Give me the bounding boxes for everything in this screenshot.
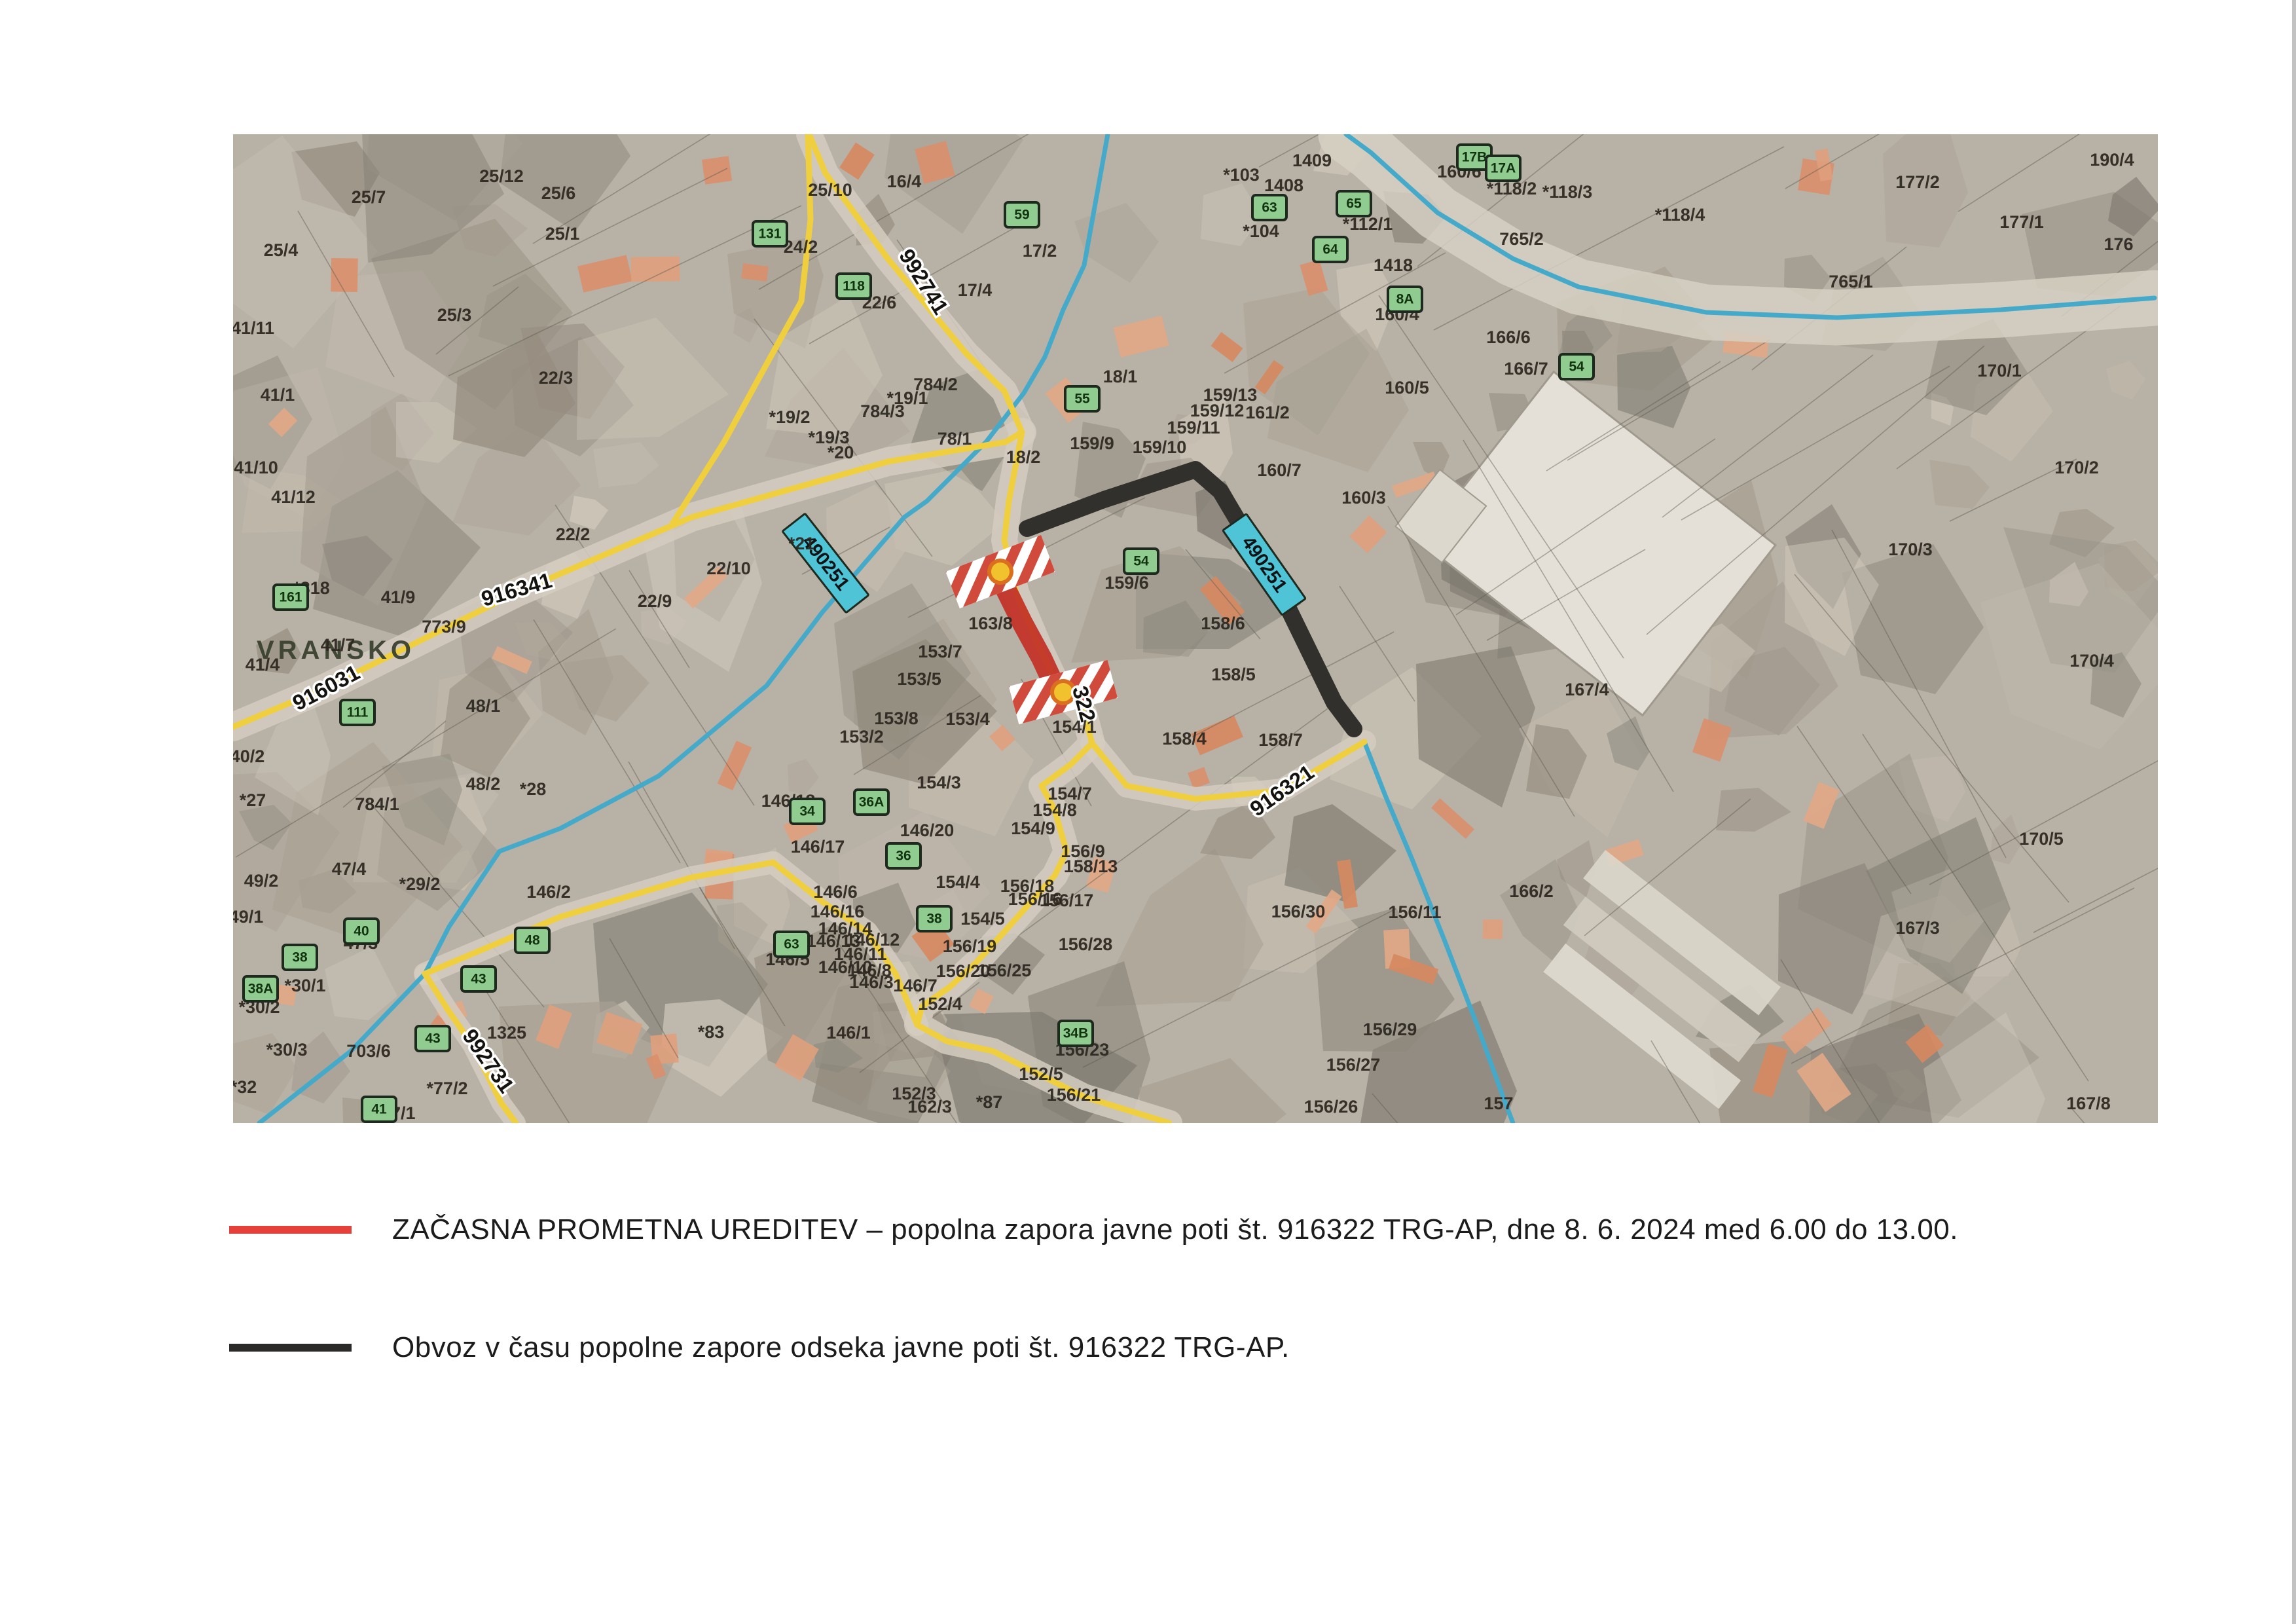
parcel-label: 158/7 (1258, 730, 1303, 750)
svg-text:*30/1: *30/1 (284, 976, 325, 995)
parcel-label: 48/1 (466, 696, 501, 716)
house-number-box: 34 (790, 799, 824, 824)
svg-text:153/5: 153/5 (897, 669, 941, 689)
svg-text:25/7: 25/7 (352, 187, 386, 207)
parcel-label: 170/2 (2054, 458, 2099, 477)
svg-text:765/1: 765/1 (1829, 272, 1873, 291)
svg-text:154/5: 154/5 (960, 909, 1005, 929)
parcel-label: 170/1 (1977, 361, 2022, 380)
parcel-label: 41/12 (271, 487, 316, 507)
svg-text:18/1: 18/1 (1103, 367, 1138, 386)
svg-text:160/3: 160/3 (1341, 488, 1386, 507)
svg-text:64: 64 (1322, 242, 1338, 257)
parcel-label: *77/2 (426, 1079, 467, 1098)
svg-text:170/4: 170/4 (2069, 651, 2114, 671)
parcel-label: *32 (233, 1077, 257, 1097)
house-number-box: 54 (1559, 354, 1594, 379)
svg-text:152/3: 152/3 (892, 1084, 936, 1103)
house-number-box: 65 (1337, 191, 1371, 216)
svg-text:*104: *104 (1243, 221, 1279, 241)
house-number-box: 38 (917, 906, 951, 931)
svg-text:43: 43 (425, 1031, 440, 1046)
svg-text:*27: *27 (240, 790, 266, 810)
parcel-label: 153/4 (945, 709, 990, 729)
house-number-box: 54 (1124, 549, 1158, 574)
svg-text:55: 55 (1074, 392, 1090, 407)
svg-text:25/3: 25/3 (437, 305, 472, 325)
parcel-label: 784/2 (913, 375, 958, 394)
svg-text:17B: 17B (1462, 150, 1487, 165)
parcel-label: 167/4 (1565, 680, 1609, 699)
parcel-label: *21 (788, 534, 815, 553)
parcel-label: 177/1 (1999, 212, 2044, 232)
house-number-box: 34B (1059, 1021, 1093, 1046)
parcel-label: 156/25 (977, 961, 1032, 980)
house-number-box: 59 (1005, 202, 1039, 227)
house-number-box: 36A (854, 790, 888, 815)
house-number-box: 161 (274, 585, 308, 610)
parcel-label: 152/5 (1019, 1064, 1063, 1084)
svg-text:765/2: 765/2 (1499, 229, 1544, 249)
parcel-label: 156/19 (943, 936, 997, 956)
house-number-box: 55 (1065, 386, 1099, 411)
parcel-label: 25/7 (352, 187, 386, 207)
svg-text:63: 63 (1262, 200, 1277, 215)
svg-text:63: 63 (784, 937, 799, 952)
svg-text:167/8: 167/8 (2066, 1094, 2111, 1113)
parcel-label: 49/2 (244, 871, 279, 891)
parcel-label: 170/4 (2069, 651, 2114, 671)
svg-text:163/8: 163/8 (968, 614, 1013, 633)
parcel-label: 25/10 (808, 180, 852, 200)
svg-text:154/4: 154/4 (936, 872, 980, 892)
house-number-box: 63 (774, 932, 809, 957)
svg-text:36A: 36A (859, 795, 884, 810)
parcel-label: 146/1 (826, 1023, 871, 1043)
svg-text:156/19: 156/19 (943, 936, 997, 956)
house-number-box: 41 (362, 1097, 396, 1122)
parcel-label: *29/2 (399, 874, 440, 894)
svg-text:22/3: 22/3 (539, 368, 574, 388)
svg-text:154/8: 154/8 (1032, 800, 1077, 820)
scan-edge-artifact (2292, 0, 2296, 1624)
svg-text:160/5: 160/5 (1385, 378, 1429, 397)
svg-text:159/11: 159/11 (1167, 418, 1220, 437)
parcel-label: 159/10 (1133, 437, 1187, 457)
svg-text:118: 118 (843, 279, 865, 294)
house-number-box: 64 (1313, 237, 1347, 262)
svg-text:*103: *103 (1223, 165, 1260, 185)
svg-text:*29/2: *29/2 (399, 874, 440, 894)
svg-text:41/11: 41/11 (233, 318, 274, 338)
svg-text:*118/3: *118/3 (1542, 182, 1593, 202)
svg-text:167/3: 167/3 (1895, 918, 1940, 938)
house-number-box: 8A (1388, 287, 1422, 312)
svg-text:17A: 17A (1491, 161, 1516, 176)
parcel-label: 146/6 (813, 882, 858, 902)
svg-text:158/4: 158/4 (1162, 729, 1207, 748)
parcel-label: 22/9 (638, 591, 672, 611)
svg-text:16/4: 16/4 (887, 172, 922, 191)
parcel-label: 154/8 (1032, 800, 1077, 820)
svg-text:784/3: 784/3 (860, 401, 905, 421)
svg-text:154/9: 154/9 (1011, 819, 1055, 838)
svg-text:159/13: 159/13 (1203, 385, 1258, 405)
svg-text:156/21: 156/21 (1047, 1085, 1101, 1105)
parcel-label: 41/4 (246, 655, 280, 674)
svg-text:41/4: 41/4 (246, 655, 280, 674)
parcel-label: 41/1 (261, 385, 295, 405)
house-number-box: 131 (753, 221, 787, 246)
parcel-label: 161/2 (1245, 403, 1290, 422)
svg-text:703/6: 703/6 (346, 1041, 391, 1061)
house-number-box: 63 (1252, 195, 1286, 220)
svg-text:22/10: 22/10 (706, 559, 751, 578)
detour-color-swatch (229, 1344, 352, 1352)
parcel-label: 48/2 (466, 774, 501, 794)
parcel-label: 156/27 (1326, 1055, 1381, 1075)
svg-text:47/4: 47/4 (332, 859, 367, 879)
parcel-label: 154/4 (936, 872, 980, 892)
svg-text:41/10: 41/10 (234, 458, 278, 477)
svg-text:146/1: 146/1 (826, 1023, 871, 1043)
svg-text:152/4: 152/4 (918, 994, 962, 1014)
parcel-label: 153/2 (839, 727, 884, 747)
house-number-box: 43 (462, 967, 496, 991)
svg-text:40: 40 (354, 924, 369, 939)
parcel-label: 154/5 (960, 909, 1005, 929)
parcel-label: 703/6 (346, 1041, 391, 1061)
parcel-label: 17/2 (1023, 241, 1057, 261)
svg-text:24/2: 24/2 (784, 237, 818, 257)
svg-text:177/2: 177/2 (1895, 172, 1940, 192)
parcel-label: 146/8 (847, 961, 892, 980)
svg-text:25/1: 25/1 (545, 224, 580, 244)
svg-text:170/1: 170/1 (1977, 361, 2022, 380)
svg-text:153/8: 153/8 (874, 709, 919, 728)
parcel-label: 40/2 (233, 747, 264, 766)
scanned-page: { "document": { "type": "scanned traffic… (0, 0, 2296, 1624)
house-number-box: 111 (340, 700, 374, 725)
parcel-label: 158/6 (1201, 614, 1245, 633)
parcel-label: 25/4 (264, 240, 299, 260)
aerial-map: VRANSKO916031916341992741992731916321322… (233, 134, 2158, 1123)
svg-text:34: 34 (799, 804, 815, 819)
svg-text:78/1: 78/1 (938, 429, 972, 449)
parcel-label: 784/1 (355, 794, 399, 814)
svg-text:*19/2: *19/2 (769, 407, 810, 427)
closure-color-swatch (229, 1226, 352, 1234)
svg-text:166/6: 166/6 (1486, 327, 1531, 347)
parcel-label: 41/9 (381, 587, 416, 607)
svg-text:*28: *28 (520, 779, 547, 799)
parcel-label: 157 (1484, 1094, 1513, 1113)
parcel-label: 784/3 (860, 401, 905, 421)
svg-text:158/7: 158/7 (1258, 730, 1303, 750)
svg-text:*118/4: *118/4 (1655, 205, 1705, 225)
parcel-label: *30/3 (266, 1040, 307, 1060)
svg-text:1418: 1418 (1374, 255, 1413, 275)
svg-text:152/5: 152/5 (1019, 1064, 1063, 1084)
svg-text:48/1: 48/1 (466, 696, 501, 716)
svg-text:22/2: 22/2 (556, 525, 591, 544)
svg-text:*83: *83 (698, 1022, 725, 1042)
svg-text:25/10: 25/10 (808, 180, 852, 200)
parcel-label: 24/2 (784, 237, 818, 257)
svg-text:25/12: 25/12 (479, 166, 524, 186)
parcel-label: 159/6 (1104, 573, 1149, 593)
house-number-box: 48 (515, 928, 549, 953)
svg-text:167/4: 167/4 (1565, 680, 1609, 699)
svg-text:54: 54 (1133, 554, 1149, 569)
parcel-label: *104 (1243, 221, 1279, 241)
svg-text:48: 48 (524, 933, 540, 948)
parcel-label: 41/10 (234, 458, 278, 477)
svg-text:784/1: 784/1 (355, 794, 399, 814)
svg-text:*32: *32 (233, 1077, 257, 1097)
parcel-label: 154/9 (1011, 819, 1055, 838)
parcel-label: 25/6 (541, 183, 576, 203)
svg-text:153/7: 153/7 (918, 642, 962, 661)
svg-text:159/9: 159/9 (1070, 434, 1114, 453)
parcel-label: 25/3 (437, 305, 472, 325)
parcel-label: 160/3 (1341, 488, 1386, 507)
svg-text:156/29: 156/29 (1363, 1020, 1417, 1039)
parcel-label: 1409 (1292, 151, 1332, 170)
svg-text:*77/2: *77/2 (426, 1079, 467, 1098)
parcel-label: 17/4 (958, 280, 993, 300)
parcel-label: 156/26 (1304, 1097, 1358, 1116)
svg-text:784/2: 784/2 (913, 375, 958, 394)
svg-text:159/10: 159/10 (1133, 437, 1187, 457)
parcel-label: *103 (1223, 165, 1260, 185)
svg-text:18/2: 18/2 (1006, 447, 1041, 467)
svg-text:146/8: 146/8 (847, 961, 892, 980)
parcel-label: *30/1 (284, 976, 325, 995)
svg-text:146/20: 146/20 (900, 821, 955, 840)
parcel-label: *20 (828, 443, 854, 462)
svg-text:*20: *20 (828, 443, 854, 462)
svg-text:156/30: 156/30 (1271, 902, 1326, 921)
house-number-box: 40 (344, 919, 378, 944)
parcel-label: 156/11 (1388, 902, 1441, 922)
parcel-label: 49/1 (233, 907, 263, 927)
parcel-label: 1418 (1374, 255, 1413, 275)
svg-text:146/6: 146/6 (813, 882, 858, 902)
parcel-label: 1325 (487, 1023, 526, 1043)
svg-text:170/5: 170/5 (2019, 829, 2064, 849)
parcel-label: *87 (976, 1092, 1003, 1112)
svg-text:*30/3: *30/3 (266, 1040, 307, 1060)
svg-text:43: 43 (471, 972, 486, 987)
svg-text:153/2: 153/2 (839, 727, 884, 747)
svg-text:25/4: 25/4 (264, 240, 299, 260)
parcel-label: 22/3 (539, 368, 574, 388)
svg-text:170/2: 170/2 (2054, 458, 2099, 477)
svg-text:156/25: 156/25 (977, 961, 1032, 980)
svg-text:111: 111 (347, 705, 369, 720)
svg-text:17/4: 17/4 (958, 280, 993, 300)
svg-text:38A: 38A (248, 982, 274, 997)
parcel-label: 166/7 (1504, 359, 1548, 378)
svg-text:156/18: 156/18 (1000, 876, 1055, 896)
svg-text:49/2: 49/2 (244, 871, 279, 891)
house-number-box: 118 (837, 274, 871, 299)
svg-text:131: 131 (758, 227, 781, 242)
svg-text:159/6: 159/6 (1104, 573, 1149, 593)
parcel-label: 765/2 (1499, 229, 1544, 249)
parcel-label: *118/4 (1655, 205, 1705, 225)
svg-text:22/9: 22/9 (638, 591, 672, 611)
svg-text:177/1: 177/1 (1999, 212, 2044, 232)
svg-text:38: 38 (926, 912, 942, 927)
svg-text:176: 176 (2104, 234, 2133, 254)
house-number-box: 36 (886, 843, 920, 868)
legend-item-closure: ZAČASNA PROMETNA UREDITEV – popolna zapo… (229, 1213, 1958, 1247)
parcel-label: 176 (2104, 234, 2133, 254)
parcel-label: 41/7 (321, 635, 355, 655)
parcel-label: 152/3 (892, 1084, 936, 1103)
legend-detour-text: Obvoz v času popolne zapore odseka javne… (392, 1331, 1290, 1365)
svg-text:17/2: 17/2 (1023, 241, 1057, 261)
parcel-label: 154/3 (917, 773, 961, 792)
parcel-label: 153/8 (874, 709, 919, 728)
parcel-label: 163/8 (968, 614, 1013, 633)
svg-text:41/7: 41/7 (321, 635, 355, 655)
legend-closure-text: ZAČASNA PROMETNA UREDITEV – popolna zapo… (392, 1213, 1958, 1247)
parcel-label: 78/1 (938, 429, 972, 449)
parcel-label: 153/5 (897, 669, 941, 689)
svg-text:154/1: 154/1 (1052, 717, 1097, 737)
svg-text:40/2: 40/2 (233, 747, 264, 766)
svg-text:41/9: 41/9 (381, 587, 416, 607)
parcel-label: *19/2 (769, 407, 810, 427)
svg-text:156/28: 156/28 (1059, 934, 1113, 954)
map-canvas: VRANSKO916031916341992741992731916321322… (233, 134, 2158, 1123)
parcel-label: 159/11 (1167, 418, 1220, 437)
svg-text:156/9: 156/9 (1061, 841, 1105, 861)
svg-text:190/4: 190/4 (2090, 150, 2134, 170)
parcel-label: 170/3 (1888, 540, 1933, 559)
parcel-label: 22/2 (556, 525, 591, 544)
parcel-label: 18/1 (1103, 367, 1138, 386)
parcel-label: 154/1 (1052, 717, 1097, 737)
house-number-box: 38 (283, 945, 317, 970)
parcel-label: 156/29 (1363, 1020, 1417, 1039)
svg-text:158/6: 158/6 (1201, 614, 1245, 633)
svg-text:41/1: 41/1 (261, 385, 295, 405)
parcel-label: 159/13 (1203, 385, 1258, 405)
parcel-label: 158/5 (1211, 665, 1256, 684)
svg-text:38: 38 (292, 950, 308, 965)
svg-text:153/4: 153/4 (945, 709, 990, 729)
svg-text:157: 157 (1484, 1094, 1513, 1113)
svg-text:*87: *87 (976, 1092, 1003, 1112)
svg-text:161/2: 161/2 (1245, 403, 1290, 422)
parcel-label: 156/9 (1061, 841, 1105, 861)
svg-text:59: 59 (1014, 208, 1029, 223)
parcel-label: 167/8 (2066, 1094, 2111, 1113)
svg-text:158/5: 158/5 (1211, 665, 1256, 684)
svg-text:156/26: 156/26 (1304, 1097, 1358, 1116)
parcel-label: 152/4 (918, 994, 962, 1014)
parcel-label: 159/9 (1070, 434, 1114, 453)
house-number-box: 17A (1486, 156, 1520, 181)
legend-item-detour: Obvoz v času popolne zapore odseka javne… (229, 1331, 1290, 1365)
parcel-label: *83 (698, 1022, 725, 1042)
parcel-label: 22/10 (706, 559, 751, 578)
parcel-label: 146/17 (791, 837, 845, 857)
parcel-label: *28 (520, 779, 547, 799)
parcel-label: 166/6 (1486, 327, 1531, 347)
svg-text:160/7: 160/7 (1257, 460, 1302, 480)
svg-text:48/2: 48/2 (466, 774, 501, 794)
parcel-label: 16/4 (887, 172, 922, 191)
parcel-label: 166/2 (1509, 881, 1554, 901)
parcel-label: 156/30 (1271, 902, 1326, 921)
svg-text:1408: 1408 (1264, 175, 1303, 195)
svg-text:54: 54 (1569, 360, 1584, 375)
svg-text:161: 161 (279, 590, 302, 605)
parcel-label: 160/7 (1257, 460, 1302, 480)
svg-text:166/7: 166/7 (1504, 359, 1548, 378)
house-number-box: 43 (416, 1026, 450, 1051)
svg-text:146/2: 146/2 (526, 882, 571, 902)
parcel-label: 156/18 (1000, 876, 1055, 896)
svg-text:154/3: 154/3 (917, 773, 961, 792)
svg-text:*21: *21 (788, 534, 815, 553)
svg-text:156/11: 156/11 (1388, 902, 1441, 922)
svg-text:146/17: 146/17 (791, 837, 845, 857)
house-number-box: 38A (244, 976, 278, 1001)
svg-text:170/3: 170/3 (1888, 540, 1933, 559)
svg-text:1325: 1325 (487, 1023, 526, 1043)
parcel-label: 41/11 (233, 318, 274, 338)
svg-text:773/9: 773/9 (422, 617, 466, 637)
svg-text:36: 36 (896, 849, 911, 864)
parcel-label: 146/2 (526, 882, 571, 902)
parcel-label: 25/1 (545, 224, 580, 244)
svg-text:8A: 8A (1396, 292, 1414, 307)
parcel-label: 47/4 (332, 859, 367, 879)
parcel-label: 146/7 (893, 976, 938, 995)
parcel-label: 25/12 (479, 166, 524, 186)
svg-text:166/2: 166/2 (1509, 881, 1554, 901)
parcel-label: 156/28 (1059, 934, 1113, 954)
parcel-label: 177/2 (1895, 172, 1940, 192)
parcel-label: 153/7 (918, 642, 962, 661)
parcel-label: 190/4 (2090, 150, 2134, 170)
parcel-label: 1408 (1264, 175, 1303, 195)
parcel-label: 765/1 (1829, 272, 1873, 291)
svg-text:1409: 1409 (1292, 151, 1332, 170)
parcel-label: 146/20 (900, 821, 955, 840)
parcel-label: 167/3 (1895, 918, 1940, 938)
parcel-label: 158/4 (1162, 729, 1207, 748)
parcel-label: 18/2 (1006, 447, 1041, 467)
svg-text:25/6: 25/6 (541, 183, 576, 203)
svg-text:41/12: 41/12 (271, 487, 316, 507)
parcel-label: 156/21 (1047, 1085, 1101, 1105)
parcel-label: 773/9 (422, 617, 466, 637)
svg-text:65: 65 (1346, 196, 1362, 212)
svg-text:34B: 34B (1063, 1026, 1089, 1041)
svg-text:146/7: 146/7 (893, 976, 938, 995)
parcel-label: 160/5 (1385, 378, 1429, 397)
svg-text:156/27: 156/27 (1326, 1055, 1381, 1075)
svg-text:41: 41 (371, 1102, 387, 1117)
parcel-label: *118/3 (1542, 182, 1593, 202)
